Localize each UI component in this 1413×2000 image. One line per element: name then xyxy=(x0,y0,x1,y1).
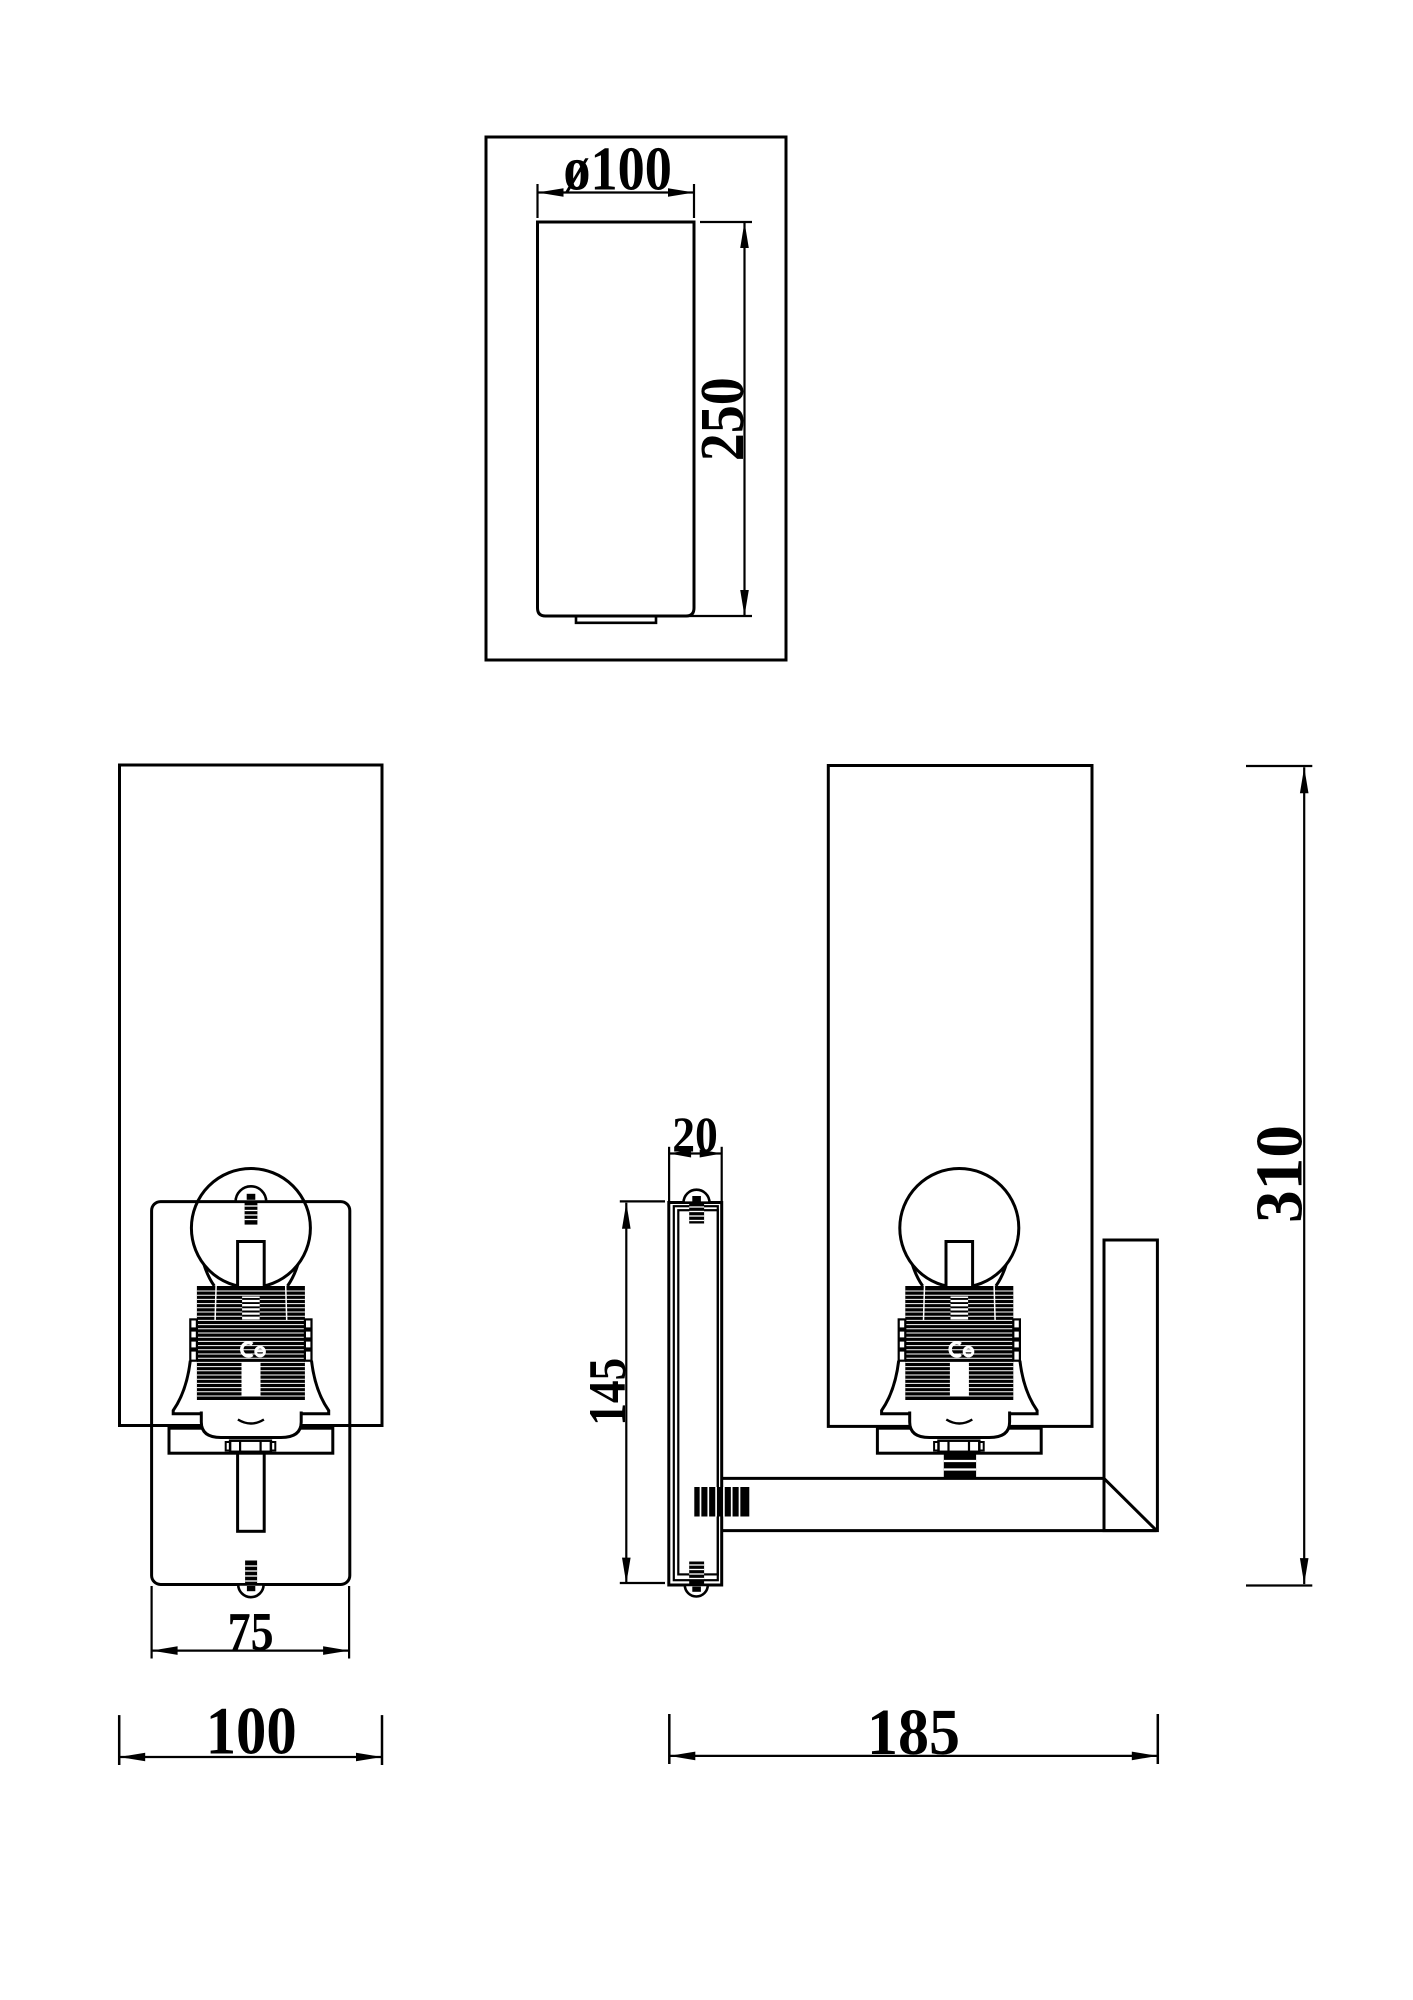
svg-text:20: 20 xyxy=(672,1106,718,1162)
svg-text:145: 145 xyxy=(579,1358,637,1426)
svg-text:75: 75 xyxy=(228,1601,274,1662)
svg-text:100: 100 xyxy=(206,1694,297,1769)
svg-text:310: 310 xyxy=(1243,1125,1317,1223)
svg-text:ø100: ø100 xyxy=(563,136,672,204)
svg-text:185: 185 xyxy=(867,1696,960,1769)
svg-text:250: 250 xyxy=(689,377,757,461)
